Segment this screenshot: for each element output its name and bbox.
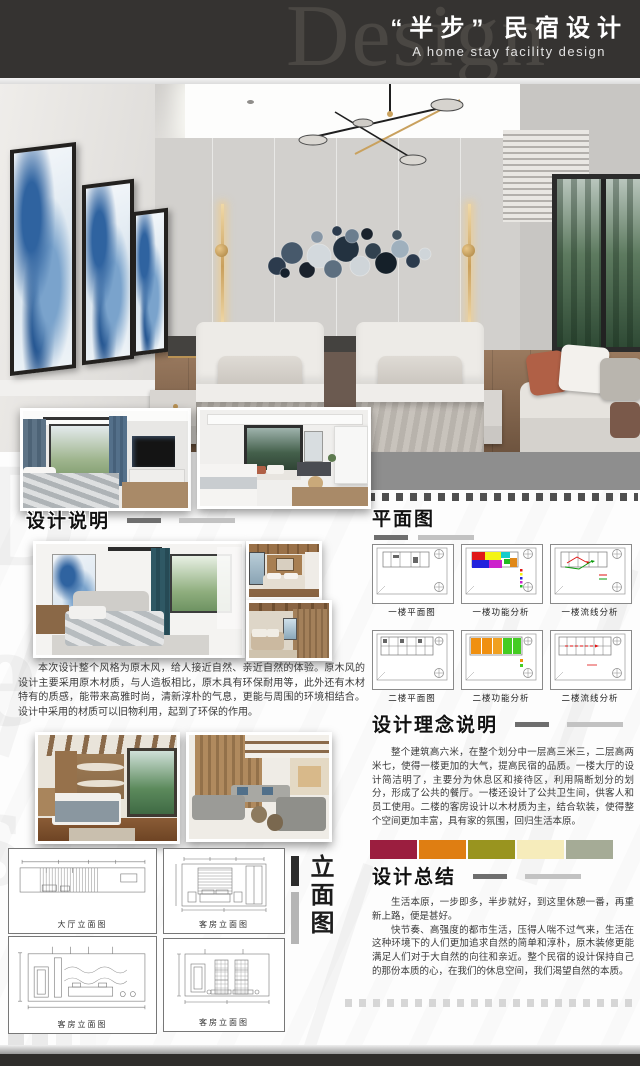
floor-plan-2f-circulation	[550, 630, 632, 690]
floor-plan-caption: 一楼流线分析	[550, 606, 630, 618]
wall-light-strip	[468, 204, 471, 329]
summary-body: 生活本原，一步即多，半步就好，到这里休憩一番，再重新上路，便是甚好。 快节奏、高…	[372, 896, 634, 979]
floor-plan-caption: 一楼功能分析	[461, 606, 541, 618]
wall-light-disc	[462, 244, 475, 257]
section-heading-design-desc: 设计说明	[26, 506, 235, 533]
heading-text: 设计理念说明	[372, 715, 498, 736]
twin-bed	[356, 384, 484, 452]
elevation-guestroom-1: 客房立面图	[163, 848, 285, 934]
poster-subtitle: A home stay facility design	[412, 44, 606, 59]
baseboard	[0, 380, 155, 396]
photo-wood-corridor-small	[246, 600, 332, 661]
design-desc-body: 本次设计整个风格为原木风，给人接近自然、亲近自然的体验。原木风的设计主要采用原木…	[18, 662, 365, 720]
elevation-guestroom-3: 客房立面图	[163, 938, 285, 1032]
heading-dash-light	[525, 874, 581, 879]
palette-swatch-crimson	[370, 840, 417, 859]
photo-bedroom-blue-art	[33, 541, 245, 658]
gray-pillow	[600, 358, 640, 400]
palette-swatch-sage	[566, 840, 613, 859]
heading-dash-dark	[473, 874, 507, 879]
palette-swatch-olive	[468, 840, 515, 859]
elevation-label-bar-dark	[291, 856, 299, 886]
chandelier	[295, 84, 465, 177]
throw-blanket	[610, 402, 640, 438]
bay-window	[552, 174, 640, 352]
section-heading-concept: 设计理念说明	[372, 710, 623, 737]
poster-page: D e s Design “半步” 民宿设计 A home stay facil…	[0, 0, 640, 1066]
wall-art-panel	[10, 142, 76, 376]
heading-dashes	[374, 531, 474, 549]
filmstrip-decoration	[368, 493, 638, 501]
heading-dash-dark	[127, 518, 161, 523]
floor-plan-1f	[372, 544, 454, 604]
wall-art-panel	[132, 208, 168, 356]
floor-plan-1f-circulation	[550, 544, 632, 604]
poster-title: “半步” 民宿设计	[390, 8, 628, 43]
section-heading-summary: 设计总结	[372, 862, 581, 889]
footer-dark-bar	[0, 1054, 640, 1066]
filmstrip-decoration	[345, 999, 638, 1007]
elevation-caption: 客房立面图	[199, 919, 249, 933]
floor-plan-caption: 二楼平面图	[372, 692, 452, 704]
footer-silver-bar	[0, 1045, 640, 1054]
ceiling-spotlight	[247, 100, 254, 104]
heading-text: 设计总结	[372, 867, 456, 888]
floor-plan-1f-function	[461, 544, 543, 604]
heading-dash-light	[179, 518, 235, 523]
floor-plan-caption: 一楼平面图	[372, 606, 452, 618]
photo-wood-living-room	[186, 732, 332, 842]
heading-dash-light	[567, 722, 623, 727]
heading-dash-dark	[515, 722, 549, 727]
photo-wood-cabin-bedroom	[35, 732, 180, 844]
elevation-label-bar-light	[291, 892, 299, 944]
floor-plan-2f-function	[461, 630, 543, 690]
photo-bedroom-bay-window	[197, 407, 371, 509]
header-divider	[0, 78, 640, 84]
palette-swatch-orange	[419, 840, 466, 859]
elevation-lobby: 大厅立面图	[8, 848, 157, 934]
metal-circle-wall-sculpture	[255, 210, 440, 298]
photo-bedroom-blue-curtains	[20, 408, 191, 511]
palette-swatch-cream	[517, 840, 564, 859]
section-heading-floor-plans: 平面图	[372, 504, 435, 531]
header-bar: Design “半步” 民宿设计 A home stay facility de…	[0, 0, 640, 78]
elevation-caption: 客房立面图	[199, 1017, 249, 1031]
elevation-guestroom-2: 客房立面图	[8, 936, 157, 1034]
wall-light-strip	[221, 204, 224, 329]
wall-art-panel	[82, 179, 134, 365]
heading-text: 设计说明	[26, 511, 110, 532]
heading-text: 平面图	[372, 509, 435, 530]
floor-plan-caption: 二楼功能分析	[461, 692, 541, 704]
elevation-caption: 客房立面图	[58, 1019, 108, 1033]
wall-light-disc	[215, 244, 228, 257]
concept-body: 整个建筑高六米，在整个划分中一层高三米三，二层高两米七，使得一楼更加的大气，提高…	[372, 746, 634, 829]
photo-wood-bedroom-small	[246, 541, 322, 600]
elevation-caption: 大厅立面图	[58, 919, 108, 933]
floor-plan-caption: 二楼流线分析	[550, 692, 630, 704]
elevation-section-label: 立面图	[302, 854, 337, 938]
hero-photo-twin-guestroom	[0, 84, 640, 452]
floor-plan-2f	[372, 630, 454, 690]
